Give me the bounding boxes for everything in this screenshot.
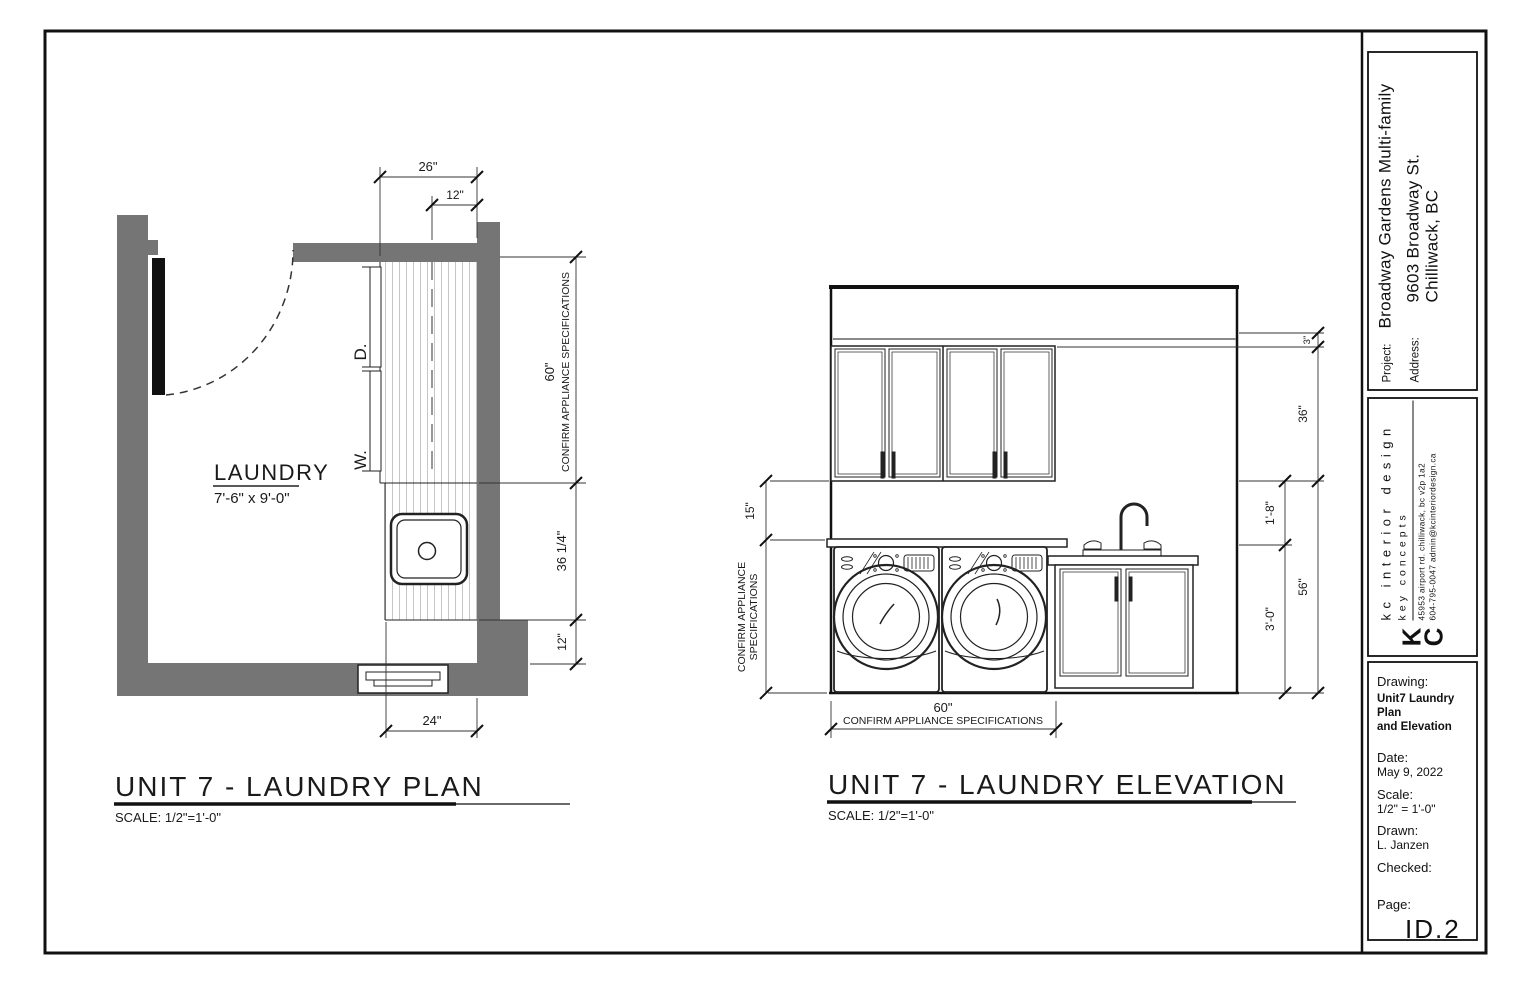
dim-3: 3" [1302, 336, 1313, 345]
washer-front [834, 547, 939, 692]
dryer-label: D. [351, 344, 370, 361]
appliance-countertop [827, 539, 1067, 547]
sink-rim [1083, 550, 1161, 556]
dryer-footprint [370, 267, 381, 367]
plan-door [152, 250, 293, 395]
plan-view: LAUNDRY 7'-6" x 9'-0" D. W. [114, 159, 586, 825]
dim-confirm-2: SPECIFICATIONS [748, 574, 760, 661]
plan-room-label: LAUNDRY 7'-6" x 9'-0" D. W. [213, 344, 370, 508]
faucet-handle-right [1144, 541, 1161, 549]
plan-window [358, 665, 448, 693]
cabinet-handle [1004, 452, 1007, 478]
drawing-sheet: LAUNDRY 7'-6" x 9'-0" D. W. [0, 0, 1530, 990]
cabinet-handle [892, 452, 895, 478]
cabinet-handle [1115, 577, 1118, 601]
dim-60-note: CONFIRM APPLIANCE SPECIFICATIONS [560, 272, 572, 472]
plan-sink [391, 514, 467, 584]
elevation-title: UNIT 7 - LAUNDRY ELEVATION [828, 769, 1287, 800]
wall-door-jamb [131, 240, 158, 255]
door-swing-arc [166, 250, 293, 395]
wall-left [117, 215, 148, 696]
cabinet-handle [1129, 577, 1132, 601]
dim-24: 24" [422, 713, 441, 728]
cabinet-handle [881, 452, 884, 478]
room-name: LAUNDRY [214, 460, 329, 485]
sink-countertop [1048, 556, 1198, 565]
dim-26: 26" [418, 159, 437, 174]
faucet [1121, 504, 1147, 550]
wall-top [293, 243, 480, 262]
dim-60-note-elev: CONFIRM APPLIANCE SPECIFICATIONS [843, 715, 1043, 727]
door-leaf [152, 258, 165, 395]
dim-12-top: 12" [446, 188, 464, 202]
room-size: 7'-6" x 9'-0" [214, 490, 290, 507]
faucet-handle-left [1084, 541, 1101, 549]
elevation-title-group: UNIT 7 - LAUNDRY ELEVATION SCALE: 1/2"=1… [827, 769, 1296, 823]
sheet-linework: LAUNDRY 7'-6" x 9'-0" D. W. [0, 0, 1530, 990]
dryer-front [942, 547, 1047, 692]
dim-60: 60" [542, 362, 557, 381]
plan-title-group: UNIT 7 - LAUNDRY PLAN SCALE: 1/2"=1'-0" [114, 771, 570, 825]
dim-1-8: 1'-8" [1263, 501, 1277, 525]
washer-label: W. [351, 450, 370, 470]
wall-right [477, 222, 500, 696]
plan-title: UNIT 7 - LAUNDRY PLAN [115, 771, 484, 802]
upper-cabinets [831, 346, 1055, 481]
elevation-scale: SCALE: 1/2"=1'-0" [828, 808, 934, 823]
washer-footprint [370, 371, 381, 471]
dim-confirm-1: CONFIRM APPLIANCE [736, 562, 748, 672]
wall-bottom [117, 663, 528, 696]
dim-3-0: 3'-0" [1263, 607, 1277, 631]
dim-36: 36" [1296, 405, 1310, 423]
dim-60-elev: 60" [933, 700, 952, 715]
appliance-counter-hatch [380, 262, 477, 483]
dim-15: 15" [743, 502, 757, 520]
sink-cabinet [1048, 504, 1198, 688]
elevation-view: 15" CONFIRM APPLIANCE SPECIFICATIONS 60"… [736, 287, 1324, 823]
cabinet-handle [993, 452, 996, 478]
plan-scale: SCALE: 1/2"=1'-0" [115, 810, 221, 825]
sink-drain [419, 543, 436, 560]
dim-36-quarter: 36 1/4" [554, 530, 569, 571]
dim-12-right: 12" [555, 633, 569, 651]
dim-56: 56" [1296, 578, 1310, 596]
